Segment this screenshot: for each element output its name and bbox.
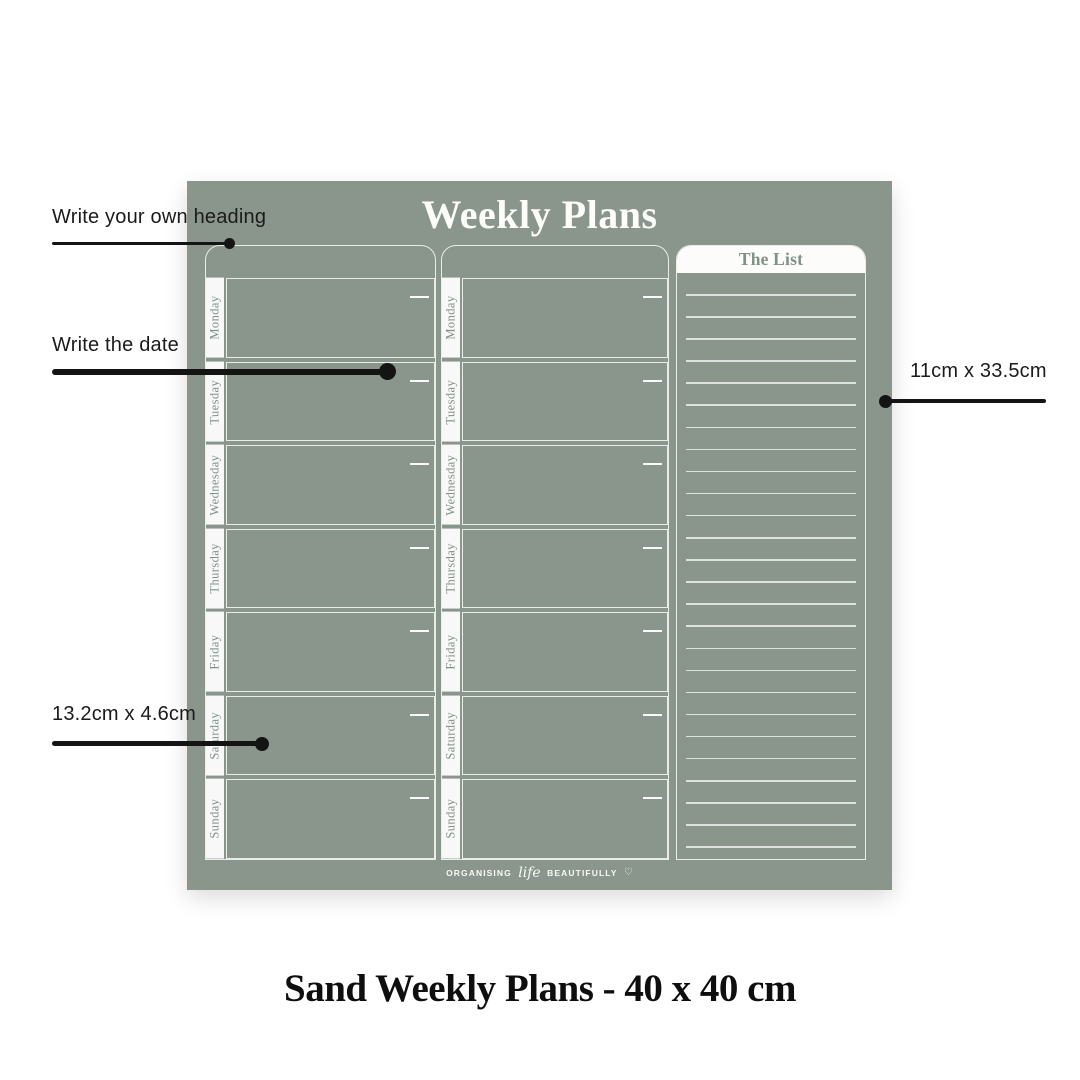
list-line (686, 338, 856, 340)
week-column-2: Monday Tuesday Wednesday (441, 245, 669, 860)
list-line (686, 824, 856, 826)
day-label: Sunday (442, 779, 460, 859)
date-line (410, 547, 429, 549)
list-line (686, 603, 856, 605)
date-line (643, 380, 662, 382)
day-rows: Monday Tuesday Wednesday (206, 278, 435, 859)
list-line (686, 382, 856, 384)
day-writing-area (226, 612, 436, 692)
day-writing-area (462, 696, 669, 776)
list-line (686, 427, 856, 429)
date-line (643, 630, 662, 632)
date-line (410, 797, 429, 799)
day-writing-area (226, 696, 436, 776)
brand-logo-text: ORGANISING (446, 868, 512, 878)
day-writing-area (462, 445, 669, 525)
day-label: Saturday (206, 696, 224, 776)
day-writing-area (462, 779, 669, 859)
day-row: Monday (442, 278, 668, 358)
day-row: Sunday (206, 779, 435, 859)
list-line (686, 802, 856, 804)
list-line (686, 846, 856, 848)
product-caption: Sand Weekly Plans - 40 x 40 cm (0, 966, 1080, 1011)
callout-date-dot (379, 363, 396, 380)
brand-logo: ORGANISING life BEAUTIFULLY ♡ (187, 864, 892, 882)
callout-row-size-label: 13.2cm x 4.6cm (52, 703, 196, 726)
day-writing-area (226, 278, 436, 358)
list-line (686, 515, 856, 517)
day-writing-area (462, 612, 669, 692)
day-writing-area (462, 362, 669, 442)
day-row: Saturday (442, 696, 668, 776)
day-writing-area (462, 278, 669, 358)
list-line (686, 294, 856, 296)
day-row: Saturday (206, 696, 435, 776)
day-rows: Monday Tuesday Wednesday (442, 278, 668, 859)
day-label: Monday (206, 278, 224, 358)
day-writing-area (226, 445, 436, 525)
brand-logo-text: BEAUTIFULLY (547, 868, 617, 878)
day-writing-area (226, 779, 436, 859)
day-row: Thursday (442, 529, 668, 609)
date-line (410, 296, 429, 298)
list-line (686, 625, 856, 627)
list-line (686, 692, 856, 694)
callout-list-size-line (886, 399, 1046, 403)
list-line (686, 714, 856, 716)
callout-list-size-label: 11cm x 33.5cm (910, 360, 1047, 383)
list-line (686, 537, 856, 539)
brand-logo-script: life (518, 865, 540, 881)
day-writing-area (226, 529, 436, 609)
list-line (686, 449, 856, 451)
list-line (686, 493, 856, 495)
planner-title: Weekly Plans (187, 191, 892, 238)
day-label: Friday (206, 612, 224, 692)
day-label: Thursday (442, 529, 460, 609)
list-line (686, 360, 856, 362)
day-label: Wednesday (442, 445, 460, 525)
custom-heading-space (442, 246, 668, 278)
heart-icon: ♡ (624, 867, 633, 878)
date-line (410, 380, 429, 382)
custom-heading-space (206, 246, 435, 278)
list-line (686, 736, 856, 738)
callout-row-size-line (52, 741, 258, 746)
day-row: Wednesday (442, 445, 668, 525)
day-label: Wednesday (206, 445, 224, 525)
date-line (410, 630, 429, 632)
day-row: Thursday (206, 529, 435, 609)
day-label: Monday (442, 278, 460, 358)
day-row: Tuesday (442, 362, 668, 442)
callout-heading-label: Write your own heading (52, 206, 266, 229)
date-line (643, 296, 662, 298)
planner-board: Weekly Plans Monday Tuesday (187, 181, 892, 890)
list-line (686, 648, 856, 650)
date-line (410, 714, 429, 716)
list-line (686, 581, 856, 583)
callout-list-size-dot (879, 395, 892, 408)
list-lines (677, 273, 865, 859)
callout-date-label: Write the date (52, 334, 179, 357)
list-line (686, 471, 856, 473)
day-row: Friday (206, 612, 435, 692)
callout-date-line (52, 369, 382, 375)
callout-heading-line (52, 242, 231, 245)
callout-row-size-dot (255, 737, 269, 751)
list-line (686, 404, 856, 406)
list-line (686, 670, 856, 672)
day-row: Monday (206, 278, 435, 358)
callout-heading-dot (224, 238, 235, 249)
day-label: Saturday (442, 696, 460, 776)
list-line (686, 559, 856, 561)
day-label: Friday (442, 612, 460, 692)
day-label: Thursday (206, 529, 224, 609)
date-line (643, 463, 662, 465)
list-line (686, 758, 856, 760)
list-line (686, 780, 856, 782)
day-row: Friday (442, 612, 668, 692)
day-row: Wednesday (206, 445, 435, 525)
day-label: Sunday (206, 779, 224, 859)
list-column: The List (676, 245, 866, 860)
date-line (410, 463, 429, 465)
week-column-1: Monday Tuesday Wednesday (205, 245, 436, 860)
day-label: Tuesday (442, 362, 460, 442)
date-line (643, 797, 662, 799)
list-line (686, 316, 856, 318)
day-writing-area (462, 529, 669, 609)
date-line (643, 714, 662, 716)
list-header: The List (677, 246, 865, 273)
date-line (643, 547, 662, 549)
product-image-page: Weekly Plans Monday Tuesday (0, 0, 1080, 1080)
day-row: Sunday (442, 779, 668, 859)
